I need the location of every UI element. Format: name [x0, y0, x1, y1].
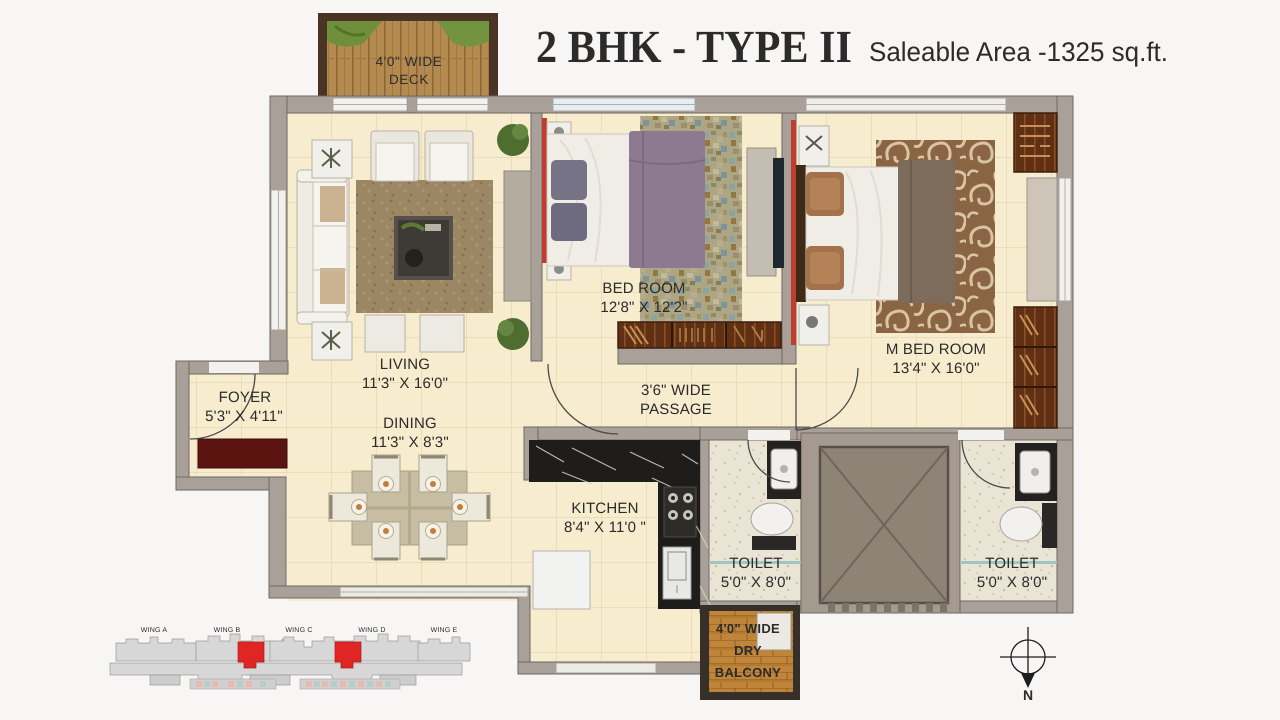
svg-text:TOILET: TOILET [985, 555, 1038, 572]
svg-text:BED ROOM: BED ROOM [602, 280, 685, 297]
svg-text:8'4" X 11'0 ": 8'4" X 11'0 " [564, 519, 646, 536]
svg-text:TOILET: TOILET [729, 555, 782, 572]
svg-text:3'6" WIDE: 3'6" WIDE [641, 382, 711, 399]
svg-text:12'8" X 12'2": 12'8" X 12'2" [600, 299, 687, 316]
svg-text:2 BHK - TYPE II: 2 BHK - TYPE II [536, 21, 852, 72]
svg-text:M BED ROOM: M BED ROOM [886, 341, 986, 358]
svg-text:5'3" X 4'11": 5'3" X 4'11" [205, 408, 283, 425]
svg-text:DINING: DINING [383, 415, 437, 432]
svg-text:WING C: WING C [285, 627, 312, 634]
svg-text:WING A: WING A [141, 627, 168, 634]
svg-text:WING D: WING D [358, 627, 385, 634]
svg-text:WING B: WING B [214, 627, 241, 634]
svg-text:4'0" WIDE: 4'0" WIDE [376, 54, 443, 69]
svg-text:KITCHEN: KITCHEN [571, 500, 638, 517]
svg-text:Saleable Area -1325 sq.ft.: Saleable Area -1325 sq.ft. [869, 37, 1168, 67]
svg-text:LIVING: LIVING [380, 356, 430, 373]
svg-text:BALCONY: BALCONY [715, 665, 781, 680]
svg-text:13'4" X 16'0": 13'4" X 16'0" [892, 360, 979, 377]
svg-text:5'0" X 8'0": 5'0" X 8'0" [721, 574, 791, 591]
svg-text:N: N [1023, 687, 1033, 703]
svg-text:11'3" X 16'0": 11'3" X 16'0" [362, 375, 448, 392]
svg-text:5'0" X 8'0": 5'0" X 8'0" [977, 574, 1047, 591]
svg-text:4'0" WIDE: 4'0" WIDE [716, 621, 780, 636]
svg-text:FOYER: FOYER [219, 389, 272, 406]
svg-text:DRY: DRY [734, 643, 762, 658]
svg-text:PASSAGE: PASSAGE [640, 401, 712, 418]
svg-text:WING E: WING E [431, 627, 458, 634]
svg-text:11'3" X 8'3": 11'3" X 8'3" [371, 434, 449, 451]
svg-text:DECK: DECK [389, 72, 429, 87]
